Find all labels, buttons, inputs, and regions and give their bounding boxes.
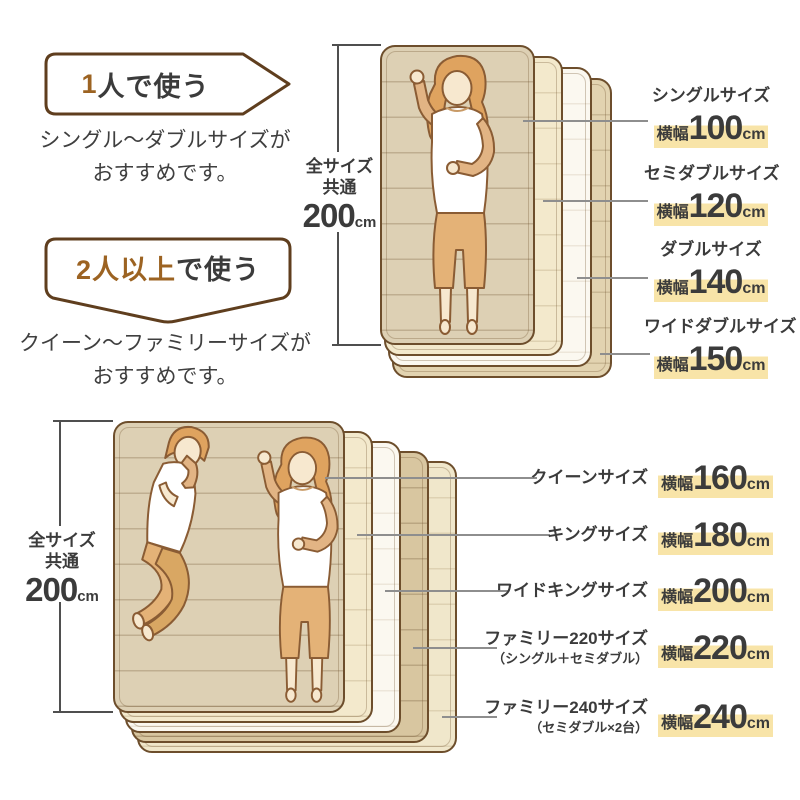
banner-one-person-number: 1 (81, 69, 97, 100)
top-bracket-line-lower (337, 232, 339, 346)
sleeping-couple-illustration (116, 424, 344, 716)
single-recommendation-text: シングル〜ダブルサイズが おすすめです。 (15, 124, 315, 190)
bottom-bracket-line-lower (59, 602, 61, 713)
size-label-wide-king: ワイドキングサイズ 横幅200cm (495, 563, 773, 619)
leader-line-single (523, 120, 648, 122)
top-bracket-tick-top (332, 44, 381, 46)
bottom-bracket-line-upper (59, 420, 61, 526)
size-value-wide-double: 横幅150cm (654, 340, 769, 379)
size-value-family-220: 横幅220cm (658, 629, 773, 668)
banner-two-person-label: で使う (176, 248, 260, 287)
size-label-single: シングルサイズ 横幅100cm (644, 81, 778, 148)
banner-two-person: 2人以上で使う (43, 236, 293, 298)
size-value-semi-double: 横幅120cm (654, 187, 769, 226)
bottom-bracket-tick-bottom (53, 711, 113, 713)
banner-two-person-number: 2人以上 (76, 248, 176, 287)
banner-one-person: 1人で使う (43, 51, 248, 117)
size-label-king: キングサイズ 横幅180cm (495, 507, 773, 563)
size-value-queen: 横幅160cm (658, 459, 773, 498)
size-value-king: 横幅180cm (658, 516, 773, 555)
size-value-double: 横幅140cm (654, 263, 769, 302)
top-bracket-line-upper (337, 44, 339, 152)
size-label-queen: クイーンサイズ 横幅160cm (495, 450, 773, 506)
multi-recommendation-text: クイーン〜ファミリーサイズが おすすめです。 (5, 327, 325, 393)
bottom-bracket-tick-top (53, 420, 113, 422)
size-label-family-240: ファミリー240サイズ（セミダブル×2台） 横幅240cm (495, 689, 773, 745)
leader-line-wide-king (385, 590, 508, 592)
size-label-semi-double: セミダブルサイズ 横幅120cm (644, 159, 778, 226)
leader-line-wide-double (600, 353, 650, 355)
leader-line-double (577, 277, 648, 279)
sleeping-woman-illustration (383, 50, 533, 342)
top-bracket-tick-bottom (332, 344, 381, 346)
bottom-common-length-label: 全サイズ 共通 200cm (12, 530, 112, 608)
size-value-family-240: 横幅240cm (658, 698, 773, 737)
mattress-size-infographic: 1人で使う シングル〜ダブルサイズが おすすめです。 2人以上で使う クイーン〜… (0, 0, 800, 800)
size-label-wide-double: ワイドダブルサイズ 横幅150cm (644, 312, 778, 379)
leader-line-semi-double (543, 200, 648, 202)
top-common-length-label: 全サイズ 共通 200cm (292, 156, 387, 234)
banner-one-person-label: 人で使う (98, 65, 210, 104)
size-value-single: 横幅100cm (654, 109, 769, 148)
size-value-wide-king: 横幅200cm (658, 572, 773, 611)
size-label-family-220: ファミリー220サイズ（シングル＋セミダブル） 横幅220cm (495, 620, 773, 676)
size-label-double: ダブルサイズ 横幅140cm (644, 235, 778, 302)
